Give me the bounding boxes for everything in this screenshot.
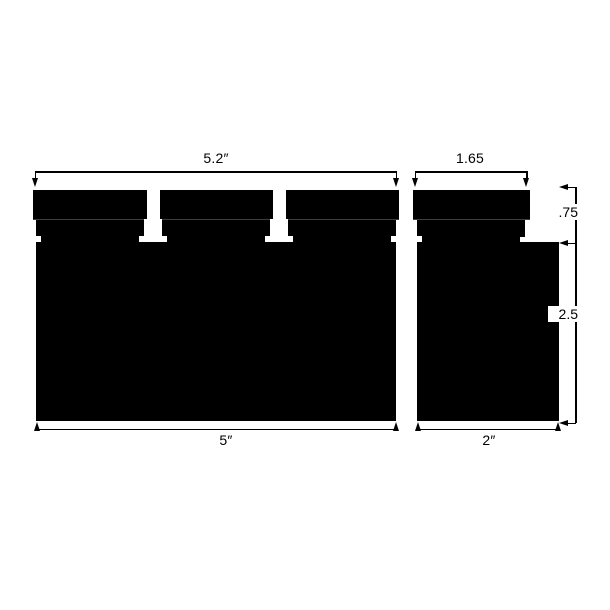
left-part-left-edge-notch [36, 236, 41, 242]
arrowhead-left-icon [559, 184, 568, 190]
arrowhead-left-icon [559, 420, 568, 426]
dim-extension [35, 171, 37, 178]
arrowhead-down-icon [393, 178, 399, 187]
t-slot-2-foot-cut [265, 236, 293, 242]
dim-extension [396, 171, 398, 178]
dim-extension [415, 171, 417, 178]
dim-label-body-height: 2.5 [548, 306, 580, 322]
right-part-flange-right-notch [520, 237, 525, 242]
right-part-body [417, 242, 559, 421]
dim-label-bottom-width-left: 5″ [190, 432, 262, 448]
dim-stub [567, 243, 576, 245]
right-part-flange [417, 219, 525, 242]
dim-stub [567, 423, 576, 425]
dim-label-top-width-left: 5.2″ [180, 150, 252, 166]
arrowhead-down-icon [523, 178, 529, 187]
left-part-body [36, 242, 396, 421]
dim-line [418, 429, 559, 431]
left-part-top-board-3 [286, 190, 399, 219]
arrowhead-down-icon [412, 178, 418, 187]
right-part-seam-line [413, 219, 530, 220]
dim-line [415, 171, 527, 173]
t-slot-2-mid-cut [270, 219, 288, 236]
dim-label-bottom-width-right: 2″ [453, 432, 525, 448]
left-part-flange [36, 219, 396, 242]
arrowhead-left-icon [559, 240, 568, 246]
left-part-top-board-2 [160, 190, 273, 219]
t-slot-1-mid-cut [144, 219, 162, 236]
technical-drawing-canvas: 5.2″ 1.65 5″ 2″ .75 2.5 [0, 0, 610, 610]
dim-label-top-height: .75 [548, 204, 580, 220]
dim-extension [526, 171, 528, 178]
left-part-right-edge-notch [391, 236, 396, 242]
right-part-top-board [413, 190, 530, 219]
dim-stub [567, 187, 576, 189]
arrowhead-up-icon [34, 422, 40, 431]
arrowhead-down-icon [32, 178, 38, 187]
dim-label-top-width-right: 1.65 [434, 150, 506, 166]
dim-line [37, 429, 397, 431]
dim-line-vertical [575, 187, 577, 423]
dim-line [35, 171, 397, 173]
arrowhead-up-icon [393, 422, 399, 431]
t-slot-1-foot-cut [139, 236, 167, 242]
left-part-seam-line [33, 219, 399, 220]
left-part-top-board-1 [33, 190, 147, 219]
right-part-left-edge-notch [417, 236, 422, 242]
arrowhead-up-icon [415, 422, 421, 431]
